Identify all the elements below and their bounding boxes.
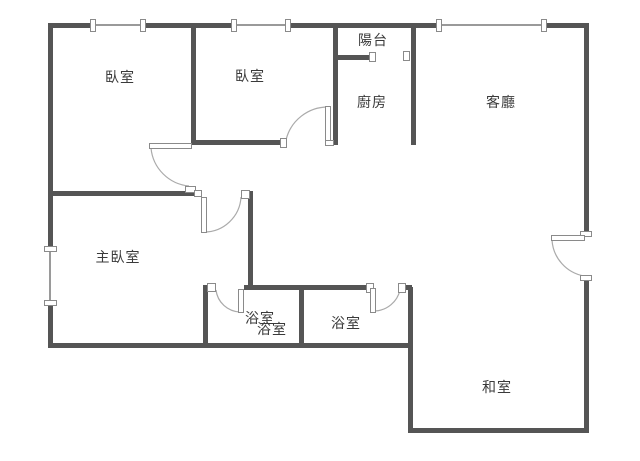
wall-bathroom-divider (299, 288, 304, 343)
wall-hall (248, 191, 253, 290)
wall-bedroom-divider (191, 23, 196, 145)
window-line-bedroom1 (93, 24, 143, 26)
door-arc-entrance (552, 240, 584, 276)
door-leaf-entrance (551, 235, 585, 241)
door-jamb-bathroom1 (207, 283, 216, 292)
window-jamb (285, 19, 291, 32)
wall-bottom-tatami (408, 428, 589, 433)
wall-bottom-left (48, 343, 412, 348)
room-label-balcony: 陽台 (358, 34, 388, 48)
wall-left-upper (48, 23, 53, 249)
wall-top-4 (544, 23, 589, 28)
door-jamb-master-right (241, 190, 250, 199)
door-arc-bathroom-1 (216, 290, 240, 312)
window-jamb (140, 19, 146, 32)
window-jamb (541, 19, 547, 32)
window-line-bedroom2 (234, 24, 288, 26)
room-label-tatami-room: 和室 (482, 381, 512, 395)
door-arc-master-bedroom (204, 197, 241, 232)
door-jamb-bathroom2-right (398, 283, 406, 293)
room-label-bedroom-1: 臥室 (105, 71, 135, 85)
door-leaf-bedroom-1 (149, 143, 192, 149)
room-label-bathroom-2: 浴室 (331, 317, 361, 331)
wall-tatami-left (408, 287, 413, 433)
window-jamb (44, 300, 57, 306)
door-leaf-bathroom-1 (238, 289, 244, 313)
door-leaf-bathroom-2 (370, 288, 376, 313)
wall-right-lower (584, 278, 589, 433)
door-jamb-balcony-right (403, 51, 410, 61)
room-label-bedroom-2: 臥室 (235, 70, 265, 84)
wall-master-top (50, 191, 196, 196)
floor-plan-canvas: 臥室 臥室 陽台 廚房 客廳 主臥室 浴室 浴室 浴室 和室 (0, 0, 640, 461)
window-jamb (90, 19, 96, 32)
wall-top-2 (143, 23, 234, 28)
door-jamb-balcony-left (369, 52, 376, 62)
wall-top-3 (288, 23, 439, 28)
door-arc-bathroom-2 (375, 290, 400, 311)
wall-bathroom-top-2 (244, 285, 368, 290)
window-line-master (49, 249, 51, 302)
door-leaf-master-bedroom (201, 197, 207, 233)
door-jamb-entrance-bottom (580, 275, 592, 281)
room-label-bathroom-1-overlap: 浴室 (257, 323, 287, 337)
door-jamb-bedroom2 (280, 138, 287, 148)
window-line-living (439, 24, 544, 26)
wall-kitchen-right (411, 23, 416, 145)
door-arc-bedroom-1 (151, 148, 189, 186)
wall-bathroom1-left (203, 288, 208, 343)
room-label-living-room: 客廳 (486, 96, 516, 110)
door-swing-arcs (0, 0, 640, 461)
door-jamb-master-left (194, 190, 202, 197)
door-leaf-bedroom-2 (325, 106, 331, 141)
wall-left-lower (48, 302, 53, 348)
room-label-master-bedroom: 主臥室 (96, 251, 141, 265)
room-label-kitchen: 廚房 (357, 96, 387, 110)
window-jamb (231, 19, 237, 32)
wall-balcony-bottom (333, 55, 371, 60)
wall-right-upper (584, 23, 589, 233)
wall-kitchen-left (333, 23, 338, 145)
door-arc-bedroom-2 (286, 107, 328, 140)
wall-bedroom2-bottom (191, 140, 282, 145)
window-jamb (44, 246, 57, 252)
wall-top-1 (48, 23, 93, 28)
window-jamb (436, 19, 442, 32)
